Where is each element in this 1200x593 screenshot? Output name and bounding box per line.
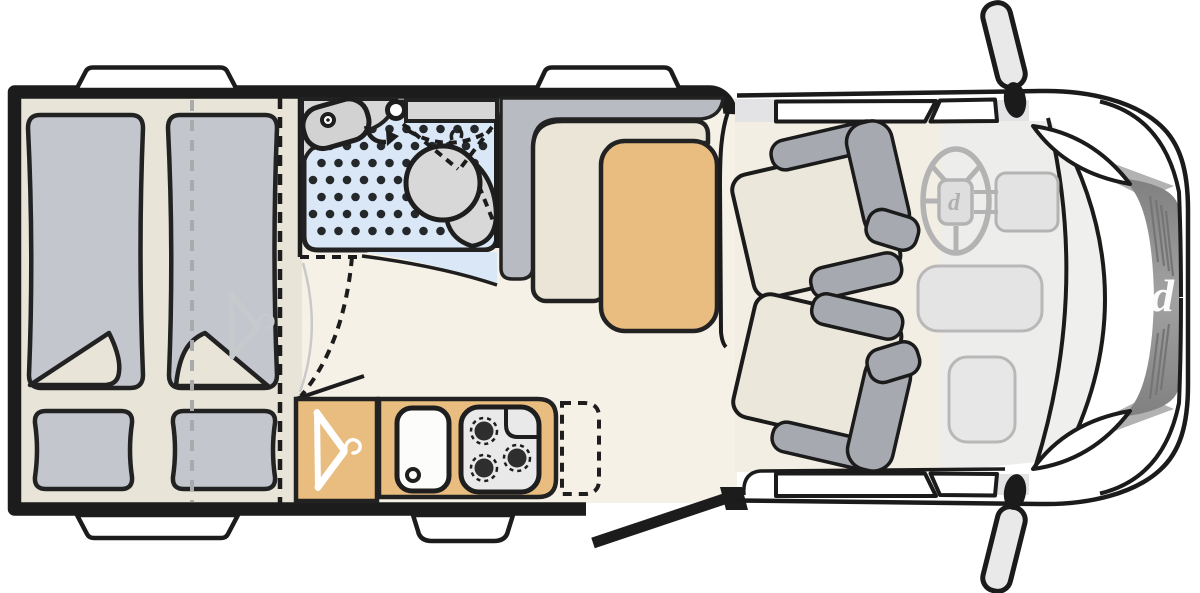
svg-text:d: d [948, 190, 961, 216]
svg-text:d: d [1151, 270, 1175, 321]
